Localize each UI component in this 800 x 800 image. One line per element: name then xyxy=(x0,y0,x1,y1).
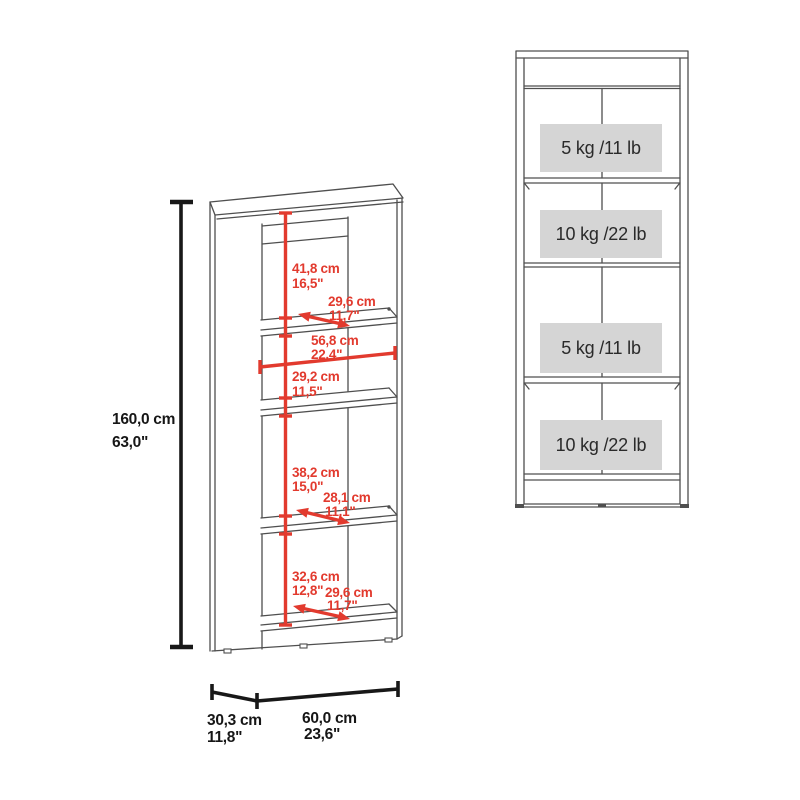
section-2-height-in-label: 11,5" xyxy=(292,384,322,399)
overall-height-in-label: 63,0" xyxy=(112,434,148,451)
foot xyxy=(680,504,689,508)
interior-width-in-label: 22,4" xyxy=(311,347,342,362)
right-bookcase-view: 5 kg /11 lb 10 kg /22 lb 5 kg /11 lb 10 … xyxy=(515,51,689,508)
foot xyxy=(385,638,392,642)
shelf-pin xyxy=(387,307,390,310)
overall-height-dimension: 160,0 cm 63,0" xyxy=(112,202,193,647)
base-dimensions: 30,3 cm 11,8" 60,0 cm 23,6" xyxy=(207,681,398,746)
foot xyxy=(515,504,524,508)
interior-width-cm-label: 56,8 cm xyxy=(311,333,359,348)
shelf-depth-1-in-label: 11,7" xyxy=(329,308,359,323)
section-2-height-cm-label: 29,2 cm xyxy=(292,369,340,384)
shelf-pin xyxy=(387,505,390,508)
shelf-capacity-2-label: 10 kg /22 lb xyxy=(556,224,647,244)
section-4-height-cm-label: 32,6 cm xyxy=(292,569,340,584)
overall-height-cm-label: 160,0 cm xyxy=(112,411,175,428)
shelf-depth-2-in-label: 11,1" xyxy=(325,504,355,519)
section-1-height-in-label: 16,5" xyxy=(292,276,323,291)
section-3-height-in-label: 15,0" xyxy=(292,479,323,494)
left-bookcase-view: 41,8 cm 16,5" 29,2 cm 11,5" 38,2 cm 15,0… xyxy=(112,184,403,746)
shelf-capacity-4-label: 10 kg /22 lb xyxy=(556,435,647,455)
section-1-height-cm-label: 41,8 cm xyxy=(292,261,340,276)
base-depth-cm-label: 30,3 cm xyxy=(207,712,262,729)
shelf-capacity-labels: 5 kg /11 lb 10 kg /22 lb 5 kg /11 lb 10 … xyxy=(540,124,662,470)
shelf-capacity-3-label: 5 kg /11 lb xyxy=(561,338,641,358)
furniture-dimension-diagram: 41,8 cm 16,5" 29,2 cm 11,5" 38,2 cm 15,0… xyxy=(0,0,800,800)
shelf-depth-3-in-label: 11,7" xyxy=(327,598,357,613)
shelf-depth-1-cm-label: 29,6 cm xyxy=(328,294,376,309)
section-3-height-cm-label: 38,2 cm xyxy=(292,465,340,480)
foot xyxy=(300,644,307,648)
diagram-canvas: 41,8 cm 16,5" 29,2 cm 11,5" 38,2 cm 15,0… xyxy=(0,0,800,800)
shelf-depth-2-cm-label: 28,1 cm xyxy=(323,490,371,505)
section-4-height-in-label: 12,8" xyxy=(292,583,323,598)
base-width-in-label: 23,6" xyxy=(304,726,340,743)
foot xyxy=(598,504,606,507)
base-depth-in-label: 11,8" xyxy=(207,729,242,746)
shelf-capacity-1-label: 5 kg /11 lb xyxy=(561,138,641,158)
base-width-cm-label: 60,0 cm xyxy=(302,710,357,727)
foot xyxy=(224,649,231,653)
section-height-dimension-chain: 41,8 cm 16,5" 29,2 cm 11,5" 38,2 cm 15,0… xyxy=(279,213,340,625)
interior-width-dimension: 56,8 cm 22,4" xyxy=(260,333,395,374)
